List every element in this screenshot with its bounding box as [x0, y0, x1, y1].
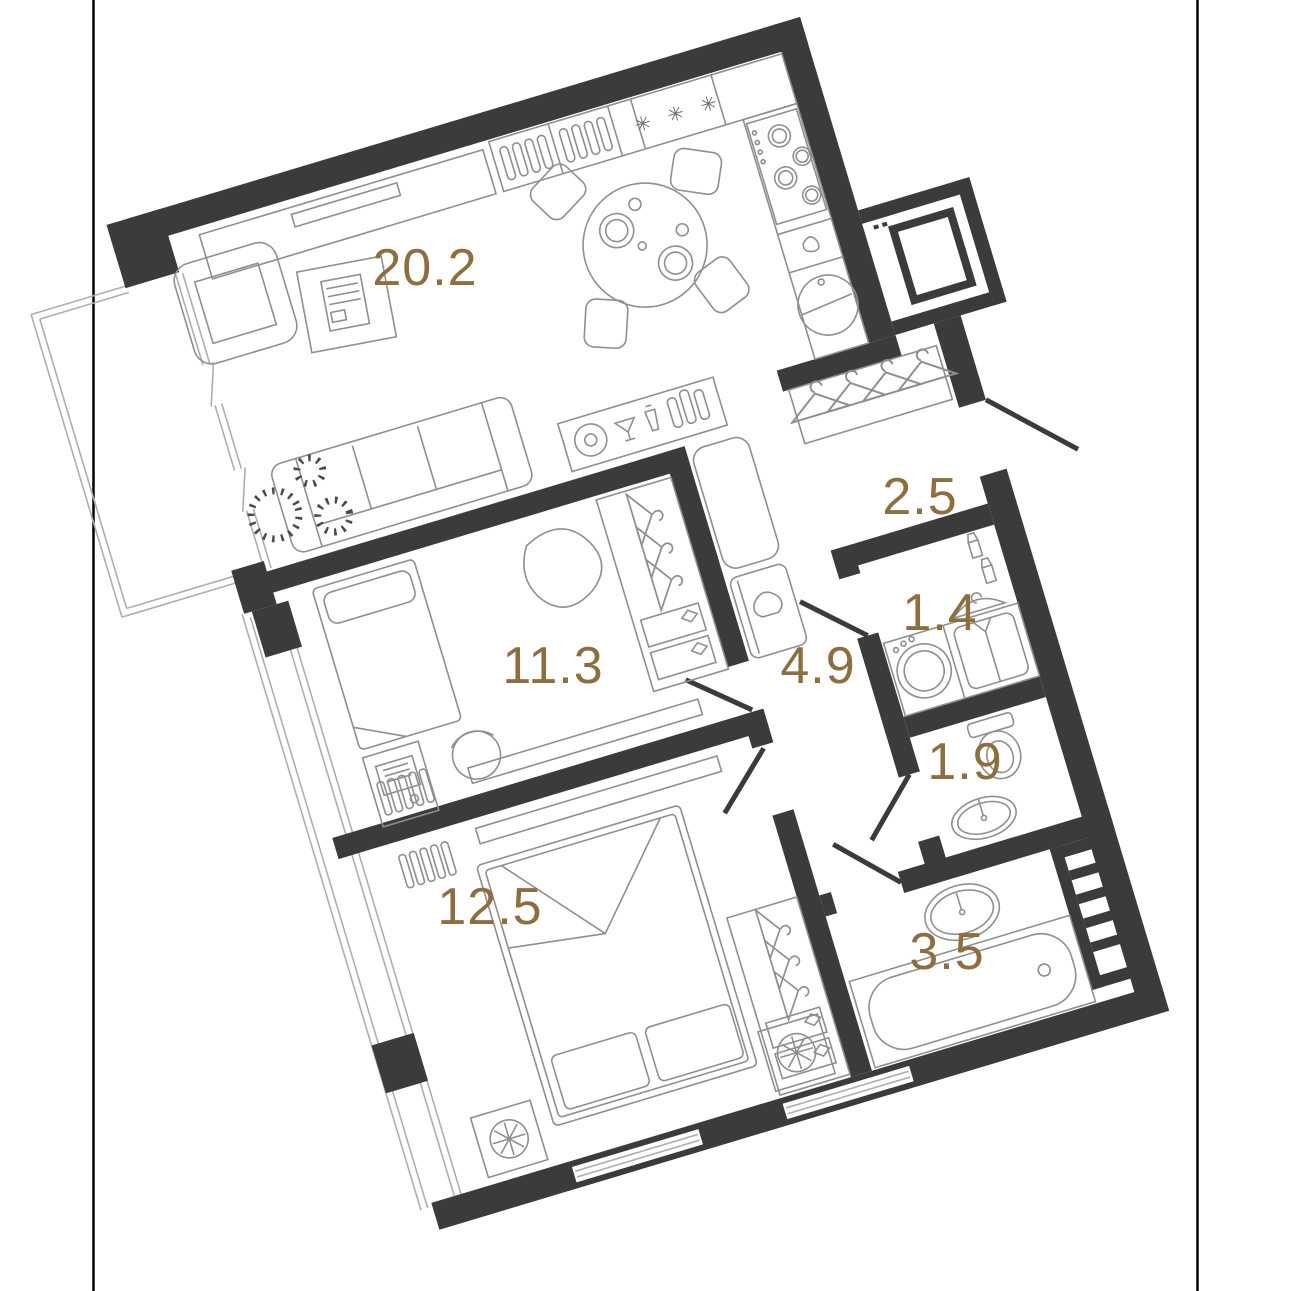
magazine-icon [321, 274, 370, 331]
wc-door-leaf [857, 774, 925, 840]
entry-door-leaf [986, 378, 1078, 470]
single-bed [312, 559, 462, 750]
dining-chair [584, 298, 629, 348]
folded-clothes-icon [650, 636, 716, 680]
sofa [269, 395, 535, 555]
wc-sink-icon [947, 789, 1022, 846]
bedroom2-door-leaf [710, 748, 778, 813]
bathroom-door-leaf [833, 829, 901, 898]
spray-bottle-icon [980, 557, 996, 583]
beanbag [515, 519, 611, 616]
pillow-icon [644, 1003, 744, 1082]
walls [107, 0, 1170, 1238]
lemon-icon [801, 235, 820, 254]
plant-icon [294, 455, 326, 487]
mirror-lamp-icon [750, 589, 784, 619]
room-area-label-bedroom1: 11.3 [502, 637, 603, 695]
desk [363, 741, 439, 827]
cocktail-glass-icon [615, 418, 640, 443]
dining-chair [526, 160, 589, 224]
shaker-icon [644, 404, 661, 431]
room-area-label-corridor: 4.9 [780, 637, 855, 695]
room-area-label-laundry: 1.4 [902, 584, 977, 642]
freezer-icon: ✳ ✳ ✳ [632, 90, 726, 137]
room-area-label-hall: 2.5 [882, 468, 957, 526]
loggia-bedrooms [242, 602, 462, 1210]
balcony-living [31, 268, 277, 617]
folded-clothes-icon [641, 603, 707, 647]
room-area-label-bathroom: 3.5 [909, 923, 984, 981]
floor-plan-canvas: ✳ ✳ ✳ [0, 0, 1291, 1291]
pillow-icon [550, 1031, 650, 1110]
spray-bottle-icon [966, 532, 982, 558]
room-area-label-bedroom2: 12.5 [437, 878, 542, 936]
room-area-label-living: 20.2 [372, 239, 477, 297]
board-icon [571, 420, 611, 460]
floor-convector [471, 1100, 548, 1177]
floor-plan-page: ✳ ✳ ✳ [0, 0, 1291, 1291]
apartment-plan: ✳ ✳ ✳ [13, 0, 1240, 1267]
bar-counter [558, 377, 728, 471]
room-area-label-wc: 1.9 [927, 733, 1002, 791]
floor-convector [758, 1014, 835, 1091]
double-bed [476, 805, 757, 1126]
dining-chair [691, 253, 753, 317]
dining-chair [669, 147, 723, 195]
